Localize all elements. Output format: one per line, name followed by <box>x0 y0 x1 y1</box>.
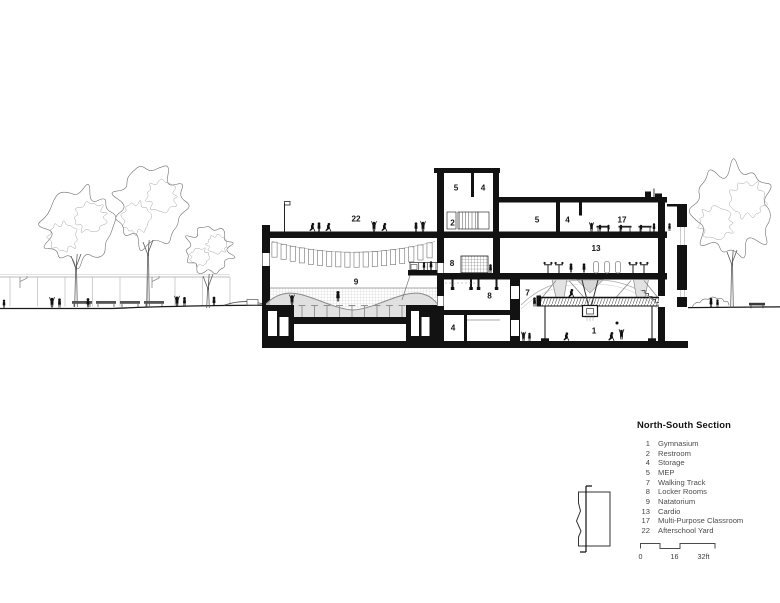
person-figure <box>183 297 186 306</box>
room-label-walking-track: 7 <box>525 289 530 298</box>
light-bracket <box>20 276 27 288</box>
basement-divider <box>464 315 467 341</box>
cardio-equipment <box>543 262 648 274</box>
legend-item: 1Gymnasium <box>637 439 780 449</box>
core-east-wall-upper <box>493 203 499 239</box>
benches <box>72 301 164 307</box>
person-figure <box>415 222 418 231</box>
core-east-wall-mezz <box>493 238 500 273</box>
east-wall <box>658 197 665 341</box>
bench <box>120 301 140 304</box>
person-figure <box>589 222 594 232</box>
net <box>587 317 593 322</box>
legend-item: 4Storage <box>637 458 780 468</box>
legend-item: 9Natatorium <box>637 497 780 507</box>
room-label-storage: 4 <box>565 216 570 225</box>
entry-step <box>247 300 258 306</box>
treadmill <box>605 262 610 274</box>
room-label-mep-penthouse: 5 <box>454 184 459 193</box>
key-plan-section-line <box>580 486 592 552</box>
roof-parapet <box>655 194 662 198</box>
facade-screen-mid <box>677 245 687 290</box>
scale-bar: 0 16 32ft <box>637 540 732 564</box>
pool-base-slab <box>294 317 406 324</box>
stair-treads <box>458 212 478 229</box>
person-figure <box>619 329 625 340</box>
person-figure <box>318 222 321 231</box>
tree-canopy <box>145 179 177 213</box>
legend-item: 17Multi-Purpose Classroom <box>637 516 780 526</box>
person-figure <box>563 332 569 340</box>
scale-bar-line <box>641 544 716 549</box>
tree-canopy <box>112 166 189 251</box>
building-section <box>262 168 688 348</box>
tree-trunk <box>203 274 213 308</box>
penthouse-roof <box>434 168 500 173</box>
key-plan-outline <box>577 492 611 546</box>
basketball <box>616 322 619 325</box>
weight-stand <box>640 265 648 273</box>
ground-line-left <box>0 305 262 308</box>
treadmill <box>616 262 621 274</box>
legend-items: 1Gymnasium 2Restroom 4Storage 5MEP 7Walk… <box>637 439 780 536</box>
person-figure <box>3 300 6 308</box>
facade-screen-base <box>677 297 687 307</box>
person-figure <box>420 221 426 232</box>
person-figure <box>710 298 713 307</box>
tree-canopy <box>729 182 767 220</box>
tree-canopy <box>205 234 227 254</box>
backboard <box>583 306 598 317</box>
site-left <box>0 275 262 309</box>
person-figure <box>668 223 671 231</box>
tree-trunk <box>71 254 81 307</box>
person-figure <box>58 298 61 307</box>
legend: North-South Section 1Gymnasium 2Restroom… <box>637 419 780 536</box>
architectural-section-page: 5 4 2 5 4 17 13 8 8 4 22 9 7 1 North-Sou… <box>0 0 780 603</box>
mezzanine-slab <box>437 273 667 280</box>
person-figure <box>716 299 719 307</box>
roof-deck-slab <box>262 232 667 239</box>
track-deck <box>541 298 659 307</box>
room-label-afterschool-yard: 22 <box>351 215 361 224</box>
wall-mep-storage <box>556 203 560 232</box>
tree-canopy <box>190 248 210 267</box>
person-figure <box>371 221 377 232</box>
legend-item: 7Walking Track <box>637 478 780 488</box>
tree-canopy <box>186 227 235 274</box>
legend-title: North-South Section <box>637 419 780 430</box>
classroom-tables <box>597 226 652 232</box>
room-label-storage-penthouse: 4 <box>481 184 486 193</box>
room-label-natatorium: 9 <box>354 278 359 287</box>
tree-canopy <box>698 206 734 240</box>
legend-item: 8Locker Rooms <box>637 487 780 497</box>
person-figure <box>489 264 492 273</box>
legend-item: 13Cardio <box>637 507 780 517</box>
room-label-storage-basement: 4 <box>451 324 456 333</box>
bench <box>749 303 765 306</box>
person-figure <box>528 333 531 341</box>
foundation-pier-left <box>262 305 294 343</box>
room-label-gymnasium: 1 <box>592 327 597 336</box>
person-figure <box>213 297 216 306</box>
main-roof-slab <box>493 197 667 203</box>
basement-slab <box>437 310 517 315</box>
weight-stand <box>544 265 552 273</box>
pool-under-structure <box>299 306 406 318</box>
ground-line-right <box>688 307 780 308</box>
person-figure <box>570 263 573 272</box>
tree-canopy <box>74 202 107 233</box>
person-figure <box>87 298 90 307</box>
person-figure <box>568 289 574 297</box>
tree-trunk <box>143 240 153 307</box>
person-figure <box>423 262 426 270</box>
person-figure <box>430 261 433 270</box>
room-label-lockers-upper: 8 <box>450 259 455 268</box>
room-label-mep: 5 <box>535 216 540 225</box>
lockers <box>461 256 488 273</box>
track-posts <box>545 306 652 341</box>
person-figure <box>309 223 315 231</box>
person-figure <box>325 223 331 231</box>
roof-vent <box>645 192 651 198</box>
treadmill <box>594 262 599 274</box>
scale-tick-32: 32ft <box>698 552 710 561</box>
scale-tick-16: 16 <box>671 552 679 561</box>
person-figure <box>533 297 536 306</box>
legend-item: 2Restroom <box>637 449 780 459</box>
core-west-wall <box>437 168 444 345</box>
person-figure <box>653 223 656 231</box>
person-figure <box>521 331 526 341</box>
scale-tick-0: 0 <box>639 552 643 561</box>
room-label-cardio: 13 <box>591 244 601 253</box>
weight-stand <box>555 265 563 273</box>
tree-trunk <box>727 250 737 308</box>
foundation-slab <box>262 341 688 348</box>
penthouse-divider <box>471 173 474 197</box>
ceiling-baffles <box>272 242 432 267</box>
person-figure <box>49 297 55 308</box>
legend-item: 5MEP <box>637 468 780 478</box>
bench <box>96 301 116 304</box>
weight-stand <box>629 265 637 273</box>
legend-item: 22Afterschool Yard <box>637 526 780 536</box>
room-label-restroom: 2 <box>450 219 455 228</box>
facade-screen-upper <box>677 206 687 227</box>
bulkhead-storage-classroom <box>579 203 582 216</box>
partition-stubs <box>453 280 497 289</box>
person-figure <box>381 223 387 231</box>
person-figure <box>583 263 586 272</box>
site-right <box>688 297 780 308</box>
room-label-classroom: 17 <box>617 216 627 225</box>
person-figure <box>599 225 601 232</box>
tree-canopy <box>689 159 771 258</box>
room-label-lockers-lower: 8 <box>487 292 492 301</box>
person-figure <box>608 332 614 341</box>
light-bracket <box>152 276 159 288</box>
tree-canopy <box>121 200 152 235</box>
key-plan-icon <box>565 483 621 557</box>
pool-catwalk <box>408 270 437 276</box>
